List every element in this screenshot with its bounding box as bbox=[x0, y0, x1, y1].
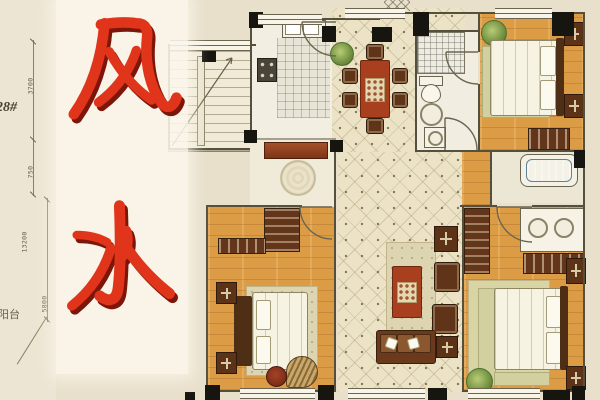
vanity-basin bbox=[528, 218, 548, 238]
headboard bbox=[560, 286, 568, 370]
column bbox=[244, 130, 257, 143]
bedside-mat bbox=[494, 372, 550, 386]
window bbox=[240, 388, 315, 399]
column bbox=[543, 390, 570, 400]
coffee-table-medallion bbox=[397, 282, 417, 303]
column bbox=[205, 385, 220, 400]
column bbox=[552, 12, 574, 36]
window bbox=[468, 388, 540, 399]
dining-plant bbox=[330, 42, 354, 66]
toilet-bowl bbox=[421, 84, 441, 103]
vanity-basin bbox=[554, 218, 574, 238]
nightstand bbox=[564, 94, 585, 118]
dining-table-runner bbox=[365, 78, 385, 102]
wall bbox=[478, 12, 480, 52]
dining-chair bbox=[392, 92, 408, 108]
master-wardrobe bbox=[464, 208, 490, 274]
column bbox=[318, 385, 334, 400]
wall bbox=[415, 150, 585, 152]
dining-chair bbox=[342, 68, 358, 84]
wall bbox=[250, 18, 252, 140]
dimension-text-lower: 5800 bbox=[40, 296, 48, 313]
wall bbox=[206, 205, 302, 207]
feng-character-glyph bbox=[62, 8, 180, 126]
wall bbox=[462, 205, 464, 392]
armchair bbox=[434, 262, 460, 292]
round-rug bbox=[280, 160, 316, 196]
side-table bbox=[434, 226, 458, 252]
window bbox=[495, 8, 552, 19]
fengshui-floorplan-image: { "overlay": { "word": "风水", "characters… bbox=[0, 0, 600, 400]
wall bbox=[490, 152, 492, 205]
hall-cabinet bbox=[264, 142, 328, 159]
column bbox=[185, 392, 195, 400]
dresser bbox=[528, 128, 570, 150]
column bbox=[372, 27, 392, 42]
column bbox=[330, 140, 343, 152]
bathtub-water bbox=[526, 159, 572, 182]
pillow bbox=[546, 296, 561, 328]
pillow bbox=[540, 46, 556, 76]
washbasin-bowl bbox=[428, 131, 443, 146]
master-hall-floor bbox=[462, 152, 492, 205]
column bbox=[572, 386, 585, 400]
bookshelf bbox=[218, 238, 266, 254]
window bbox=[258, 14, 322, 25]
wardrobe-left-bedroom bbox=[264, 208, 300, 252]
column bbox=[322, 26, 336, 42]
pillow bbox=[540, 80, 556, 110]
column bbox=[413, 12, 429, 36]
dimension-text-upper: 750 bbox=[26, 166, 34, 179]
pillow bbox=[546, 332, 561, 364]
dining-chair bbox=[392, 68, 408, 84]
fan-chair bbox=[286, 356, 318, 388]
window bbox=[348, 388, 425, 399]
building-number-label: 28# bbox=[0, 100, 17, 116]
pillow bbox=[256, 336, 271, 364]
dining-chair bbox=[366, 118, 384, 134]
dimension-text-top: 3700 bbox=[26, 78, 34, 95]
ottoman bbox=[266, 366, 287, 387]
wall bbox=[478, 84, 480, 150]
nightstand bbox=[216, 282, 237, 304]
dining-chair bbox=[366, 44, 384, 60]
balcony-label: 阳台 bbox=[0, 306, 20, 322]
wall bbox=[460, 205, 497, 207]
armchair bbox=[432, 304, 458, 334]
wall bbox=[415, 30, 417, 150]
washbasin-round bbox=[420, 103, 443, 126]
dimension-text-middle: 13200 bbox=[21, 231, 29, 252]
nightstand bbox=[216, 352, 237, 374]
pillow bbox=[256, 300, 271, 330]
stair-rail bbox=[197, 56, 205, 146]
wall bbox=[250, 138, 336, 140]
stove bbox=[257, 58, 277, 82]
column bbox=[428, 388, 447, 400]
headboard bbox=[556, 38, 564, 116]
kitchen-tile-area bbox=[277, 38, 330, 118]
wall bbox=[334, 150, 336, 392]
window bbox=[345, 8, 405, 19]
shower-area bbox=[417, 32, 465, 74]
column bbox=[574, 150, 585, 168]
wall bbox=[206, 205, 208, 392]
wall bbox=[532, 205, 585, 207]
shui-character-glyph bbox=[56, 196, 178, 318]
side-table bbox=[436, 336, 458, 358]
dining-chair bbox=[342, 92, 358, 108]
